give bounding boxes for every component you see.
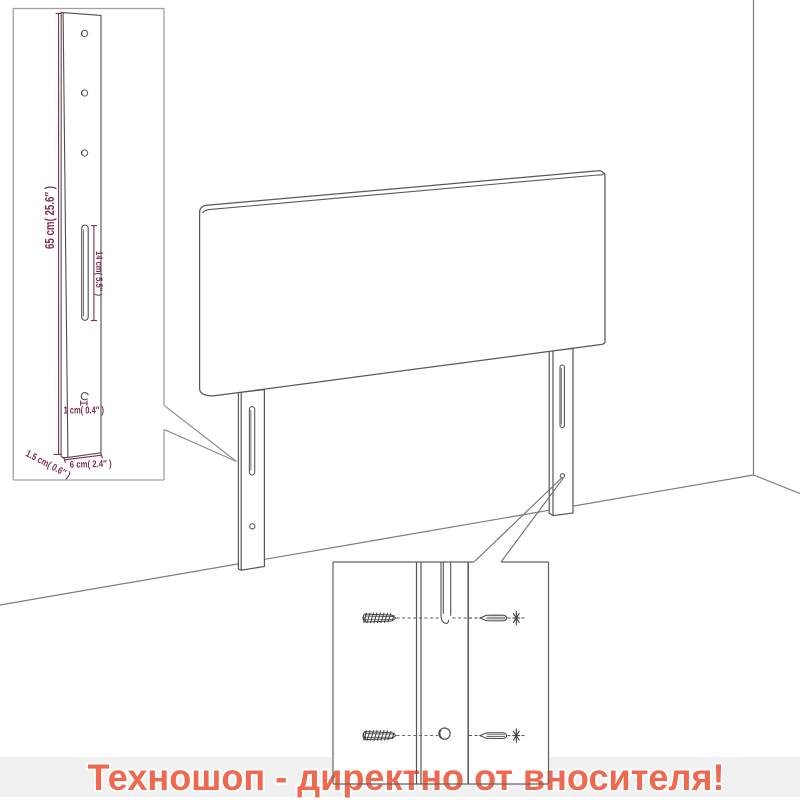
svg-text:65 cm( 25.6″ ): 65 cm( 25.6″ ) — [43, 186, 57, 249]
svg-text:6 cm( 2.4″ ): 6 cm( 2.4″ ) — [70, 459, 112, 471]
svg-text:Техношоп - директно от вносите: Техношоп - директно от вносителя! — [88, 756, 725, 798]
svg-text:14 cm( 5.5″ ): 14 cm( 5.5″ ) — [93, 251, 104, 296]
svg-text:1 cm( 0.4″ ): 1 cm( 0.4″ ) — [64, 406, 105, 417]
